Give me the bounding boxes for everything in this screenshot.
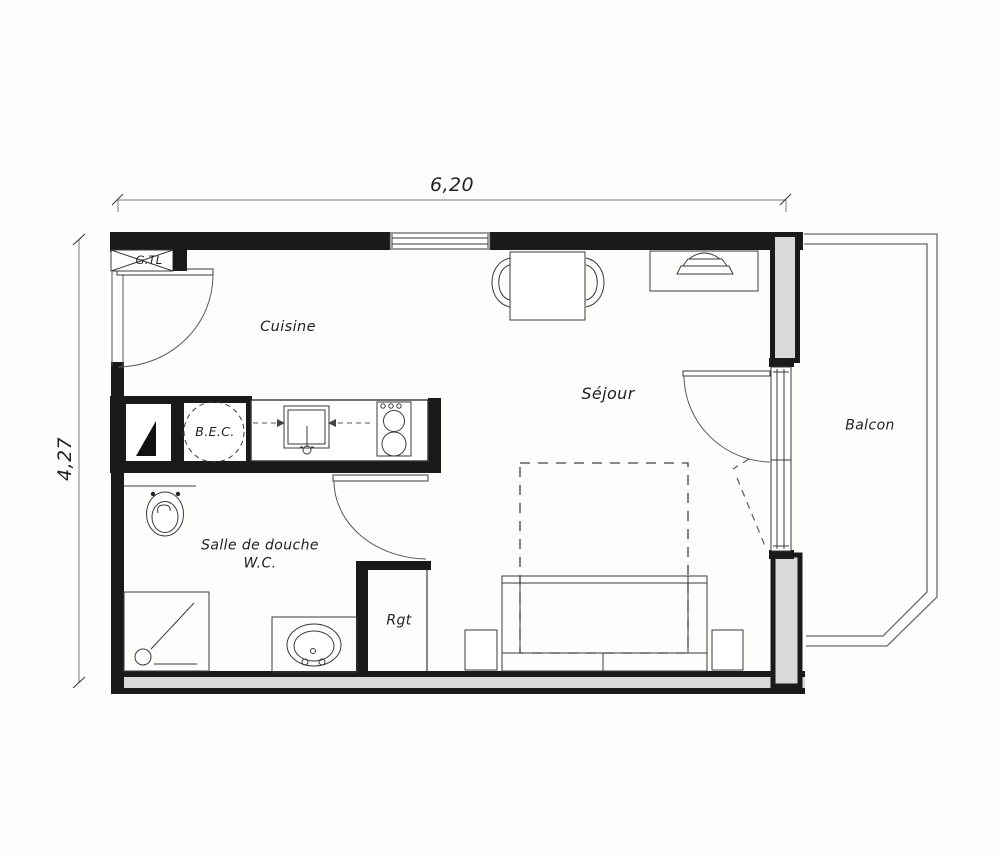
shower-room-line2: W.C. [244, 555, 277, 571]
shower-room-line1: Salle de douche [201, 538, 319, 554]
lamp-icon [677, 253, 733, 274]
room-label-balcony: Balcon [845, 417, 895, 435]
water-heater-label: B.E.C. [195, 424, 235, 440]
bed-outline-icon [520, 463, 688, 653]
dining-table-icon [510, 252, 585, 320]
room-label-cuisine: Cuisine [260, 318, 316, 336]
toilet-icon [124, 486, 196, 536]
shower-icon [124, 592, 209, 671]
side-table-icon [465, 630, 743, 670]
kitchen-counter [251, 400, 428, 461]
bathroom-door-icon [333, 475, 428, 559]
wall-bottom-fill [112, 677, 805, 689]
floor-plan-page: 6,20 4,27 G.TL B.E.C. Cuisine Séjour Sal… [0, 0, 1000, 857]
french-window-icon [769, 358, 794, 559]
wall-right-lower [773, 555, 800, 686]
room-label-shower-room: Salle de douche W.C. [201, 538, 319, 573]
room-label-sejour: Séjour [581, 384, 634, 404]
wall-top-left [110, 232, 390, 250]
room-label-storage: Rgt [386, 612, 411, 630]
wall-kitchen-bath [110, 461, 441, 473]
wall-right-upper [773, 235, 798, 361]
balcony-door-icon [683, 371, 770, 546]
door-swing-dashed [733, 459, 765, 546]
technical-duct-label: G.TL [136, 253, 163, 267]
washbasin-icon [272, 617, 357, 672]
wall-storage-top [356, 561, 431, 570]
sofa-bed-icon [502, 576, 707, 671]
wall-top-right [490, 232, 803, 250]
window-top [390, 233, 490, 249]
dimension-width-label: 6,20 [430, 174, 474, 198]
wall-counter-stub [428, 398, 441, 473]
wall-storage-left [356, 561, 368, 673]
balcony-outline [804, 234, 937, 646]
walls [110, 232, 805, 694]
entrance-door-icon [112, 269, 213, 367]
dimension-height-label: 4,27 [54, 437, 78, 481]
